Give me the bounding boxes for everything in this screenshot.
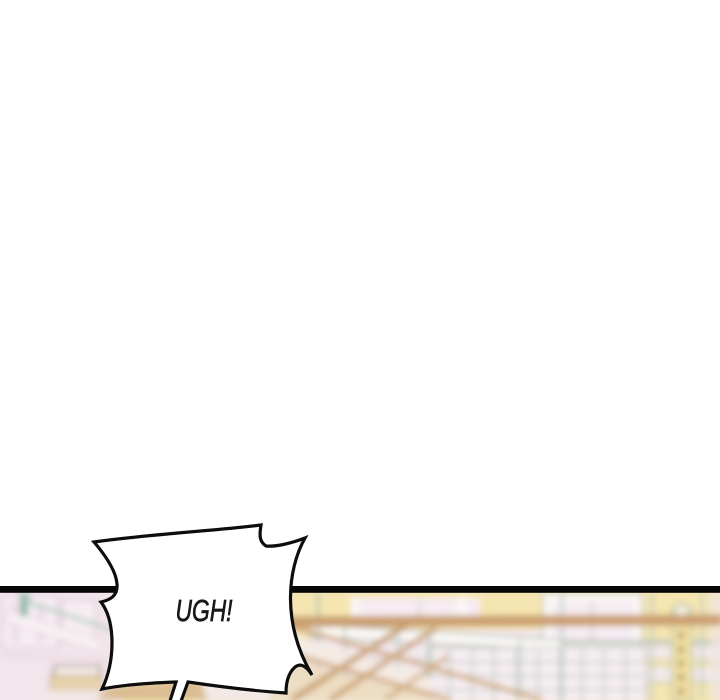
svg-text:UGH!: UGH! [176,593,233,628]
